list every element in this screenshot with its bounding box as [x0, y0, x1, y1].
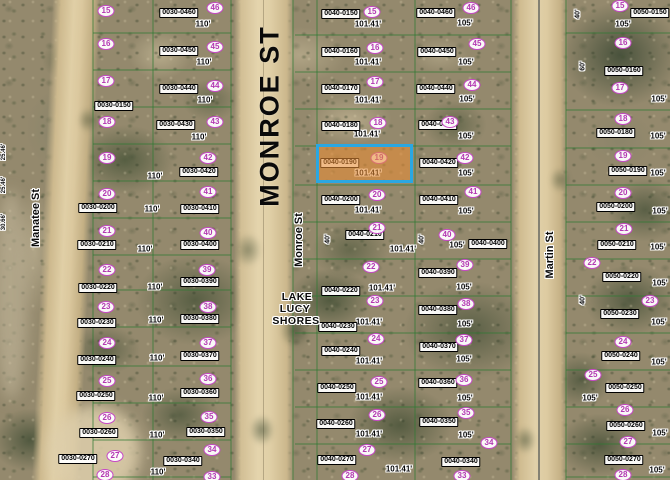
- dimension-label: 101.41': [356, 430, 382, 439]
- parcel-id-label[interactable]: 0030-0420: [179, 167, 218, 177]
- lot-number-badge[interactable]: 43: [207, 116, 224, 128]
- lot-number-badge[interactable]: 42: [200, 152, 217, 164]
- dimension-label: 105': [459, 95, 474, 104]
- lot-number-badge[interactable]: 25: [99, 375, 116, 387]
- parcel-id-label[interactable]: 0040-0200: [321, 195, 360, 205]
- parcel-id-label[interactable]: 0040-0220: [321, 286, 360, 296]
- lot-number-badge[interactable]: 33: [204, 471, 221, 480]
- lot-number-badge[interactable]: 42: [457, 152, 474, 164]
- parcel-id-label[interactable]: 0030-0460: [159, 8, 198, 18]
- lot-number-badge[interactable]: 23: [642, 295, 659, 307]
- dimension-label: 101.41': [356, 318, 382, 327]
- parcel-id-label[interactable]: 0040-0340: [441, 457, 480, 467]
- lot-number-badge[interactable]: 37: [200, 337, 217, 349]
- lot-number-badge[interactable]: 46: [207, 2, 224, 14]
- lot-number-badge[interactable]: 36: [456, 374, 473, 386]
- dimension-label: 105': [582, 394, 597, 403]
- lot-number-badge[interactable]: 19: [99, 152, 116, 164]
- dimension-label: 105': [651, 95, 666, 104]
- parcel-id-label[interactable]: 0040-0240: [321, 346, 360, 356]
- lot-number-badge[interactable]: 39: [199, 264, 216, 276]
- parcel-id-label[interactable]: 0030-0350: [186, 427, 225, 437]
- lot-number-badge[interactable]: 28: [615, 469, 632, 480]
- parcel-id-label[interactable]: 0050-0270: [604, 455, 643, 465]
- lot-number-badge[interactable]: 28: [97, 469, 114, 480]
- lot-number-badge[interactable]: 35: [458, 407, 475, 419]
- lot-number-badge[interactable]: 24: [99, 337, 116, 349]
- parcel-id-label[interactable]: 0040-0170: [321, 84, 360, 94]
- street-label-monroe-st: Monroe St: [293, 213, 305, 267]
- lot-number-badge[interactable]: 23: [98, 301, 115, 313]
- dimension-label: 105': [652, 207, 667, 216]
- dimension-label: 101.41': [369, 284, 395, 293]
- dimension-label: 40': [575, 9, 582, 18]
- lot-number-badge[interactable]: 21: [616, 223, 633, 235]
- parcel-id-label[interactable]: 0030-0230: [77, 318, 116, 328]
- parcel-id-label[interactable]: 0050-0200: [596, 202, 635, 212]
- lot-number-badge[interactable]: 22: [584, 257, 601, 269]
- dimension-label: 105': [650, 132, 665, 141]
- parcel-id-label[interactable]: 0040-0250: [317, 383, 356, 393]
- parcel-id-label[interactable]: 0040-0450: [417, 47, 456, 57]
- dimension-label: 110': [197, 58, 212, 67]
- parcel-id-label[interactable]: 0030-0440: [159, 84, 198, 94]
- dimension-label: 25.46': [1, 177, 7, 193]
- parcel-id-label[interactable]: 0040-0370: [419, 342, 458, 352]
- lot-number-badge[interactable]: 16: [615, 37, 632, 49]
- lot-number-badge[interactable]: 33: [454, 470, 471, 480]
- parcel-id-label[interactable]: 0050-0220: [602, 272, 641, 282]
- parcel-id-label[interactable]: 0040-0270: [317, 455, 356, 465]
- lot-number-badge[interactable]: 26: [617, 404, 634, 416]
- lot-number-badge[interactable]: 22: [363, 261, 380, 273]
- dimension-label: 105': [651, 358, 666, 367]
- dimension-label: 101.41': [356, 357, 382, 366]
- parcel-id-label[interactable]: 0040-0180: [321, 121, 360, 131]
- lot-number-badge[interactable]: 17: [612, 82, 629, 94]
- lot-number-badge[interactable]: 45: [469, 38, 486, 50]
- lot-number-badge[interactable]: 17: [367, 76, 384, 88]
- lot-number-badge[interactable]: 18: [370, 117, 387, 129]
- dimension-label: 110': [151, 468, 166, 477]
- dimension-label: 110': [196, 20, 211, 29]
- dimension-label: 40': [580, 295, 587, 304]
- parcel-id-label[interactable]: 0030-0270: [58, 454, 97, 464]
- dimension-label: 105': [449, 241, 464, 250]
- dimension-label: 105': [615, 20, 630, 29]
- dimension-label: 101.41': [355, 96, 381, 105]
- dimension-label: 105': [652, 429, 667, 438]
- parcel-id-label[interactable]: 0040-0160: [321, 47, 360, 57]
- parcel-id-label[interactable]: 0040-0410: [419, 195, 458, 205]
- parcel-id-label[interactable]: 0050-0210: [597, 240, 636, 250]
- lot-number-badge[interactable]: 24: [615, 336, 632, 348]
- lot-number-badge[interactable]: 25: [371, 376, 388, 388]
- lot-number-badge[interactable]: 41: [465, 186, 482, 198]
- lot-number-badge[interactable]: 27: [620, 436, 637, 448]
- parcel-id-label[interactable]: 0030-0260: [79, 428, 118, 438]
- parcel-id-label[interactable]: 0040-0380: [418, 305, 457, 315]
- parcel-id-label[interactable]: 0030-0200: [78, 203, 117, 213]
- lot-number-badge[interactable]: 40: [439, 229, 456, 241]
- dimension-label: 101.41': [386, 465, 412, 474]
- lot-number-badge[interactable]: 45: [207, 41, 224, 53]
- dimension-label: 110': [138, 245, 153, 254]
- dimension-label: 105': [458, 58, 473, 67]
- parcel-id-label[interactable]: 0040-0260: [316, 419, 355, 429]
- dimension-label: 40': [325, 234, 332, 243]
- dimension-label: 105': [650, 169, 665, 178]
- parcel-id-label[interactable]: 0050-0240: [601, 351, 640, 361]
- dimension-label: 105': [457, 320, 472, 329]
- parcel-id-label[interactable]: 0050-0160: [604, 66, 643, 76]
- selected-parcel-highlight[interactable]: [316, 144, 413, 183]
- parcel-id-label[interactable]: 0030-0400: [180, 240, 219, 250]
- dimension-label: 105': [456, 355, 471, 364]
- lot-number-badge[interactable]: 38: [458, 298, 475, 310]
- lot-number-badge[interactable]: 26: [99, 412, 116, 424]
- dimension-label: 110': [150, 354, 165, 363]
- lot-number-badge[interactable]: 15: [98, 5, 115, 17]
- dimension-label: 105': [458, 207, 473, 216]
- lot-number-badge[interactable]: 46: [463, 2, 480, 14]
- dimension-label: 40': [419, 234, 426, 243]
- dimension-label: 105': [458, 431, 473, 440]
- parcel-id-label[interactable]: 0050-0260: [606, 421, 645, 431]
- parcel-id-label[interactable]: 0040-0420: [419, 158, 458, 168]
- lot-number-badge[interactable]: 44: [464, 79, 481, 91]
- lot-number-badge[interactable]: 17: [98, 75, 115, 87]
- lot-number-badge[interactable]: 16: [367, 42, 384, 54]
- parcel-id-label[interactable]: 0050-0190: [608, 166, 647, 176]
- parcel-id-label[interactable]: 0030-0250: [76, 391, 115, 401]
- dimension-label: 60': [580, 61, 587, 70]
- parcel-id-label[interactable]: 0030-0150: [94, 101, 133, 111]
- dimension-label: 30.66': [1, 214, 7, 230]
- lot-number-badge[interactable]: 38: [200, 301, 217, 313]
- parcel-id-label[interactable]: 0030-0220: [78, 283, 117, 293]
- subdivision-label: LAKE: [282, 291, 313, 303]
- dimension-label: 105': [652, 279, 667, 288]
- lot-number-badge[interactable]: 15: [612, 0, 629, 12]
- parcel-id-label[interactable]: 0030-0360: [180, 388, 219, 398]
- lot-number-badge[interactable]: 18: [615, 113, 632, 125]
- dimension-label: 110': [145, 205, 160, 214]
- lot-number-badge[interactable]: 44: [207, 80, 224, 92]
- lot-number-badge[interactable]: 35: [201, 411, 218, 423]
- lot-number-badge[interactable]: 28: [342, 470, 359, 480]
- lot-number-badge[interactable]: 15: [364, 6, 381, 18]
- parcel-id-label[interactable]: 0030-0210: [77, 240, 116, 250]
- dimension-label: 105': [457, 19, 472, 28]
- parcel-id-label[interactable]: 0050-0250: [605, 383, 644, 393]
- dimension-label: 105': [651, 318, 666, 327]
- parcel-id-label[interactable]: 0030-0430: [156, 120, 195, 130]
- parcel-id-label[interactable]: 0030-0410: [180, 204, 219, 214]
- dimension-label: 110': [149, 316, 164, 325]
- lot-number-badge[interactable]: 43: [442, 116, 459, 128]
- lot-number-badge[interactable]: 22: [99, 264, 116, 276]
- parcel-map[interactable]: 110'110'110'110'110'110'110'110'110'110'…: [0, 0, 670, 480]
- dimension-label: 105': [458, 132, 473, 141]
- lot-number-badge[interactable]: 20: [369, 189, 386, 201]
- lot-number-badge[interactable]: 36: [200, 373, 217, 385]
- parcel-id-label[interactable]: 0030-0340: [163, 456, 202, 466]
- parcel-id-label[interactable]: 0030-0240: [77, 355, 116, 365]
- lot-number-badge[interactable]: 19: [615, 150, 632, 162]
- parcel-id-label[interactable]: 0050-0180: [596, 128, 635, 138]
- parcel-id-label[interactable]: 0040-0350: [419, 417, 458, 427]
- lot-number-badge[interactable]: 39: [457, 259, 474, 271]
- parcel-id-label[interactable]: 0040-0460: [416, 8, 455, 18]
- dimension-label: 105': [649, 466, 664, 475]
- dimension-label: 101.41': [356, 393, 382, 402]
- dimension-label: 105': [458, 169, 473, 178]
- lot-number-badge[interactable]: 21: [369, 222, 386, 234]
- dimension-label: 101.41': [355, 206, 381, 215]
- lot-number-badge[interactable]: 34: [204, 444, 221, 456]
- dimension-label: 110': [148, 172, 163, 181]
- lot-number-badge[interactable]: 27: [107, 450, 124, 462]
- lot-number-badge[interactable]: 21: [99, 225, 116, 237]
- street-label-monroe-st: MONROE ST: [255, 25, 286, 207]
- lot-number-badge[interactable]: 23: [367, 295, 384, 307]
- parcel-id-label[interactable]: 0030-0380: [180, 314, 219, 324]
- dimension-label: 110': [149, 394, 164, 403]
- lot-number-badge[interactable]: 41: [200, 186, 217, 198]
- lot-number-badge[interactable]: 34: [481, 437, 498, 449]
- parcel-id-label[interactable]: 0040-0390: [418, 268, 457, 278]
- parcel-id-label[interactable]: 0040-0440: [416, 84, 455, 94]
- dimension-label: 25.46': [1, 144, 7, 160]
- dimension-label: 105': [650, 243, 665, 252]
- dimension-label: 105': [457, 394, 472, 403]
- lot-number-badge[interactable]: 40: [200, 227, 217, 239]
- parcel-id-label[interactable]: 0040-0230: [318, 322, 357, 332]
- lot-number-badge[interactable]: 25: [585, 369, 602, 381]
- parcel-id-label[interactable]: 0030-0370: [180, 351, 219, 361]
- subdivision-label: SHORES: [272, 315, 319, 327]
- lot-number-badge[interactable]: 20: [615, 187, 632, 199]
- parcel-id-label[interactable]: 0040-0360: [418, 378, 457, 388]
- lot-number-badge[interactable]: 18: [99, 116, 116, 128]
- parcel-id-label[interactable]: 0040-0400: [468, 239, 507, 249]
- dimension-label: 101.41': [390, 245, 416, 254]
- dimension-label: 110': [192, 133, 207, 142]
- parcel-id-label[interactable]: 0030-0450: [159, 46, 198, 56]
- dimension-label: 110': [150, 431, 165, 440]
- parcel-id-label[interactable]: 0030-0390: [180, 277, 219, 287]
- dimension-label: 110': [198, 96, 213, 105]
- lot-number-badge[interactable]: 37: [456, 334, 473, 346]
- dimension-label: 101.41': [355, 58, 381, 67]
- parcel-id-label[interactable]: 0040-0150: [321, 9, 360, 19]
- street-label-manatee-st: Manatee St: [30, 189, 42, 247]
- lot-number-badge[interactable]: 27: [359, 444, 376, 456]
- dimension-label: 105': [456, 283, 471, 292]
- street-label-martin-st: Martin St: [544, 231, 556, 278]
- dimension-label: 110': [148, 283, 163, 292]
- subdivision-label: LUCY: [280, 303, 311, 315]
- lot-number-badge[interactable]: 24: [368, 333, 385, 345]
- lot-number-badge[interactable]: 26: [369, 409, 386, 421]
- parcel-id-label[interactable]: 0050-0150: [630, 8, 669, 18]
- dimension-label: 101.41': [355, 20, 381, 29]
- lot-number-badge[interactable]: 16: [98, 38, 115, 50]
- lot-number-badge[interactable]: 20: [99, 188, 116, 200]
- parcel-id-label[interactable]: 0050-0230: [600, 309, 639, 319]
